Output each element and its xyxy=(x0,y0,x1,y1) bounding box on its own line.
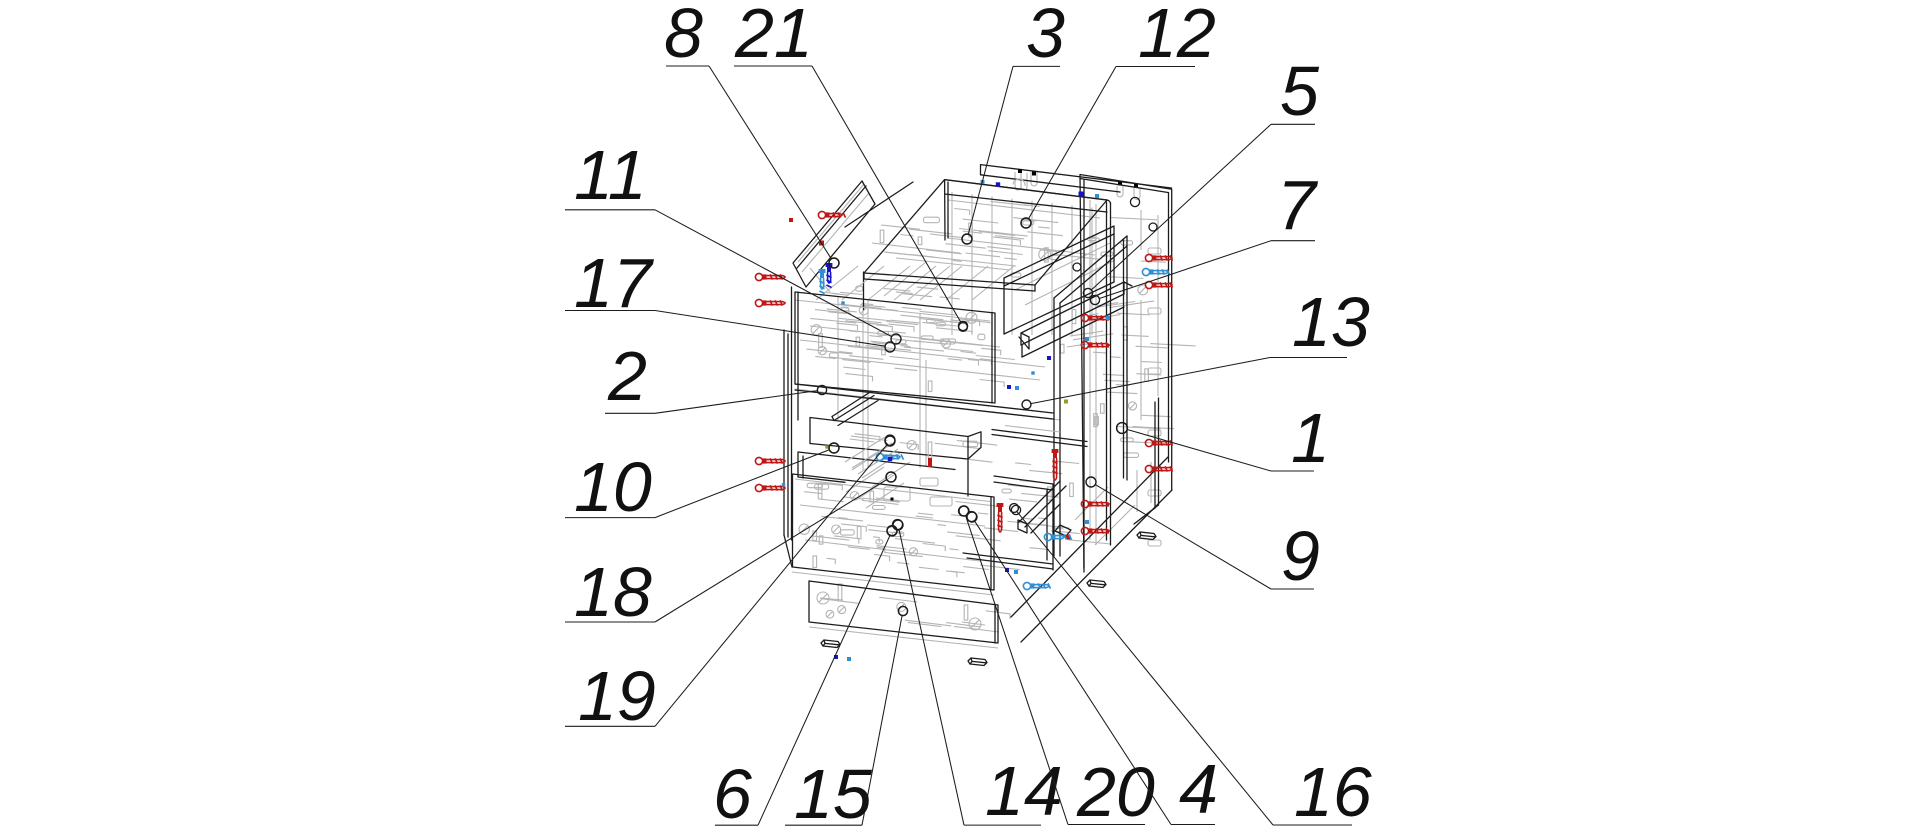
svg-text:5: 5 xyxy=(1280,52,1320,130)
svg-text:13: 13 xyxy=(1292,283,1370,361)
svg-text:2: 2 xyxy=(607,337,647,415)
svg-text:3: 3 xyxy=(1026,0,1065,72)
svg-text:18: 18 xyxy=(574,553,652,631)
svg-text:9: 9 xyxy=(1281,517,1320,595)
svg-text:8: 8 xyxy=(664,0,703,72)
svg-text:16: 16 xyxy=(1294,753,1372,831)
svg-text:19: 19 xyxy=(578,657,656,735)
svg-text:6: 6 xyxy=(713,755,752,833)
svg-text:20: 20 xyxy=(1076,753,1155,831)
svg-text:10: 10 xyxy=(574,448,652,526)
svg-text:15: 15 xyxy=(794,755,873,833)
svg-text:7: 7 xyxy=(1277,166,1319,244)
svg-text:11: 11 xyxy=(574,136,647,214)
svg-text:4: 4 xyxy=(1179,750,1218,828)
svg-text:12: 12 xyxy=(1138,0,1216,72)
svg-text:14: 14 xyxy=(985,752,1063,830)
svg-text:21: 21 xyxy=(734,0,813,72)
svg-text:17: 17 xyxy=(574,244,655,322)
svg-text:1: 1 xyxy=(1291,399,1330,477)
